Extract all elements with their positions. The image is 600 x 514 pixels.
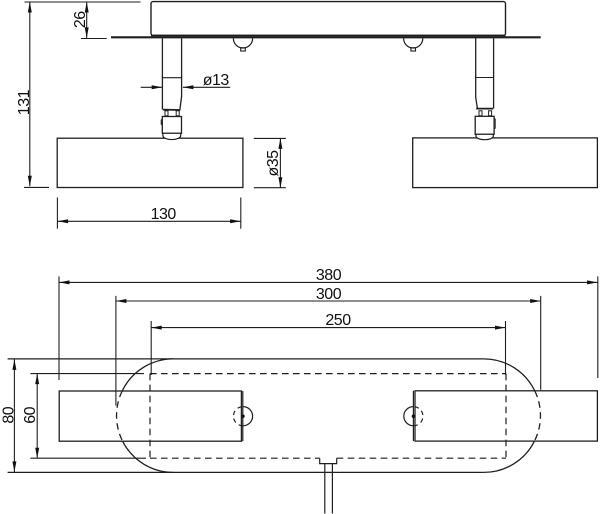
svg-text:300: 300 xyxy=(316,286,342,303)
svg-text:ø35: ø35 xyxy=(265,150,282,177)
svg-text:ø13: ø13 xyxy=(203,72,230,89)
svg-text:250: 250 xyxy=(325,312,351,329)
svg-text:131: 131 xyxy=(16,89,33,115)
svg-text:60: 60 xyxy=(22,406,39,423)
svg-text:130: 130 xyxy=(151,206,177,223)
svg-text:80: 80 xyxy=(1,406,18,423)
svg-text:380: 380 xyxy=(316,267,342,284)
svg-text:26: 26 xyxy=(72,11,89,28)
